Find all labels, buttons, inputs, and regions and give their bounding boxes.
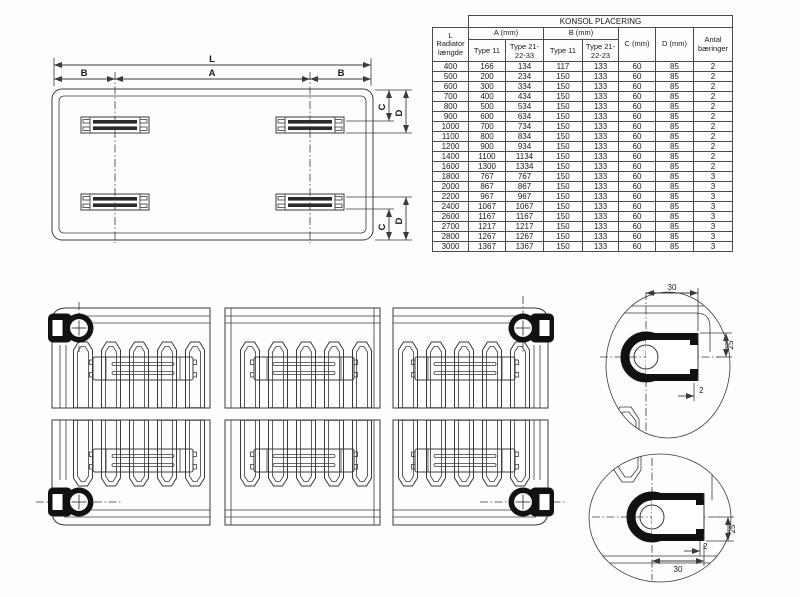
table-cell: 60 [619,242,656,252]
table-cell: 1067 [506,202,544,212]
table-cell: 150 [544,212,583,222]
table-cell: 1367 [506,242,544,252]
table-cell: 1100 [433,132,469,142]
column-header-c: C (mm) [619,28,656,62]
table-cell: 150 [544,102,583,112]
table-cell: 150 [544,82,583,92]
table-cell: 150 [544,182,583,192]
table-cell: 3 [694,242,733,252]
table-cell: 2 [694,62,733,72]
table-row: 24001067106715013360853 [433,202,733,212]
table-row: 40016613411713360852 [433,62,733,72]
table-cell: 1600 [433,162,469,172]
column-header-l: L Radiator længde [433,28,469,62]
table-cell: 1167 [469,212,506,222]
table-row: 16001300133415013360852 [433,162,733,172]
table-cell: 3 [694,172,733,182]
table-cell: 150 [544,242,583,252]
column-header-antal: Antal bæringer [694,28,733,62]
table-cell: 1000 [433,122,469,132]
table-cell: 85 [656,242,694,252]
dim-label-b-left: B [81,68,88,79]
table-cell: 867 [506,182,544,192]
table-cell: 133 [583,222,619,232]
table-cell: 700 [469,122,506,132]
table-cell: 150 [544,222,583,232]
table-cell: 85 [656,112,694,122]
table-cell: 534 [506,102,544,112]
table-cell: 85 [656,62,694,72]
radiator-right-end-view [393,296,566,525]
table-cell: 60 [619,72,656,82]
clamp-detail-top: 30 25 2 [600,283,735,438]
dim-label-c-bottom: C [377,223,388,230]
table-cell: 85 [656,222,694,232]
table-cell: 60 [619,122,656,132]
detail-top-dim-30: 30 [668,283,677,292]
column-group-a: A (mm) [469,28,544,40]
table-row: 180076776715013360853 [433,172,733,182]
table-cell: 85 [656,232,694,242]
table-cell: 133 [583,232,619,242]
column-group-b: B (mm) [544,28,619,40]
table-cell: 1067 [469,202,506,212]
radiator-left-end-view [36,302,210,525]
table-cell: 60 [619,142,656,152]
table-cell: 934 [506,142,544,152]
table-row: 200086786715013360853 [433,182,733,192]
table-cell: 834 [506,132,544,142]
table-cell: 150 [544,142,583,152]
detail-top-dim-25: 25 [726,340,735,349]
detail-top-dim-2: 2 [699,386,704,395]
detail-bottom-dim-30: 30 [674,565,683,574]
table-cell: 85 [656,142,694,152]
table-cell: 60 [619,172,656,182]
table-cell: 60 [619,232,656,242]
table-cell: 800 [433,102,469,112]
table-row: 220096796715013360853 [433,192,733,202]
table-cell: 967 [506,192,544,202]
table-cell: 133 [583,162,619,172]
table-cell: 117 [544,62,583,72]
wall-bracket-rail [251,449,358,472]
table-cell: 150 [544,122,583,132]
table-cell: 133 [583,192,619,202]
table-cell: 60 [619,222,656,232]
dim-label-l: L [209,54,215,65]
table-cell: 60 [619,162,656,172]
table-cell: 85 [656,132,694,142]
table-cell: 3 [694,192,733,202]
table-cell: 150 [544,232,583,242]
table-cell: 800 [469,132,506,142]
dim-label-c-top: C [377,103,388,110]
clamp-screw-icon [48,314,94,343]
table-cell: 2 [694,72,733,82]
table-cell: 1100 [469,152,506,162]
clamp-screw-icon [509,488,555,517]
table-cell: 134 [506,62,544,72]
table-cell: 3000 [433,242,469,252]
column-header-b-type21: Type 21-22-23 [583,40,619,62]
table-cell: 2800 [433,232,469,242]
wall-bracket-rail [251,357,358,380]
table-cell: 900 [433,112,469,122]
table-cell: 150 [544,72,583,82]
table-cell: 60 [619,112,656,122]
table-cell: 85 [656,162,694,172]
table-cell: 85 [656,122,694,132]
table-cell: 767 [506,172,544,182]
table-cell: 634 [506,112,544,122]
table-cell: 133 [583,152,619,162]
table-cell: 234 [506,72,544,82]
table-cell: 400 [469,92,506,102]
table-cell: 2 [694,152,733,162]
table-cell: 500 [469,102,506,112]
table-cell: 133 [583,182,619,192]
table-cell: 2 [694,122,733,132]
table-cell: 2 [694,82,733,92]
column-header-a-type21: Type 21-22-33 [506,40,544,62]
table-cell: 500 [433,72,469,82]
radiator-middle-view [225,308,380,525]
table-cell: 150 [544,172,583,182]
table-cell: 600 [433,82,469,92]
table-cell: 133 [583,72,619,82]
table-cell: 1267 [506,232,544,242]
table-cell: 60 [619,192,656,202]
table-cell: 400 [433,62,469,72]
dim-label-d-top: D [394,109,405,116]
table-cell: 150 [544,192,583,202]
table-cell: 60 [619,62,656,72]
table-row: 26001167116715013360853 [433,212,733,222]
table-cell: 1367 [469,242,506,252]
table-row: 100070073415013360852 [433,122,733,132]
table-cell: 700 [433,92,469,102]
table-cell: 1134 [506,152,544,162]
table-cell: 150 [544,112,583,122]
table-row: 110080083415013360852 [433,132,733,142]
table-cell: 334 [506,82,544,92]
table-cell: 1334 [506,162,544,172]
table-cell: 133 [583,172,619,182]
table-cell: 3 [694,222,733,232]
table-cell: 133 [583,142,619,152]
table-cell: 133 [583,92,619,102]
table-cell: 85 [656,102,694,112]
table-row: 28001267126715013360853 [433,232,733,242]
wall-bracket-rail [412,357,519,380]
table-row: 120090093415013360852 [433,142,733,152]
table-cell: 60 [619,92,656,102]
table-cell: 1800 [433,172,469,182]
table-cell: 1217 [469,222,506,232]
radiator-views [36,296,566,525]
table-cell: 2 [694,102,733,112]
table-cell: 2400 [433,202,469,212]
datasheet-page: L B A B C D C D [0,0,800,597]
table-cell: 60 [619,152,656,162]
table-spacer-cell [433,16,469,28]
table-cell: 133 [583,112,619,122]
table-cell: 166 [469,62,506,72]
table-cell: 150 [544,162,583,172]
table-cell: 85 [656,152,694,162]
dim-label-d-bottom: D [394,217,405,224]
table-cell: 300 [469,82,506,92]
table-row: 14001100113415013360852 [433,152,733,162]
table-cell: 150 [544,202,583,212]
table-cell: 3 [694,202,733,212]
table-cell: 734 [506,122,544,132]
konsol-placering-table: KONSOL PLACERING L Radiator længde A (mm… [432,15,733,252]
clamp-screw-icon [48,488,94,517]
table-row: 70040043415013360852 [433,92,733,102]
table-cell: 133 [583,202,619,212]
table-cell: 2700 [433,222,469,232]
column-header-a-type11: Type 11 [469,40,506,62]
table-cell: 2600 [433,212,469,222]
table-cell: 85 [656,202,694,212]
table-cell: 85 [656,212,694,222]
table-cell: 2 [694,112,733,122]
table-row: 90060063415013360852 [433,112,733,122]
table-cell: 133 [583,132,619,142]
table-cell: 2 [694,142,733,152]
table-cell: 60 [619,132,656,142]
table-row: 80050053415013360852 [433,102,733,112]
table-cell: 85 [656,172,694,182]
table-cell: 150 [544,132,583,142]
table-cell: 1400 [433,152,469,162]
table-cell: 3 [694,182,733,192]
table-cell: 900 [469,142,506,152]
table-cell: 60 [619,102,656,112]
clamp-screw-icon [509,314,555,343]
table-cell: 1217 [506,222,544,232]
table-cell: 1167 [506,212,544,222]
table-cell: 2 [694,162,733,172]
table-title: KONSOL PLACERING [469,16,733,28]
table-cell: 1200 [433,142,469,152]
table-row: 50020023415013360852 [433,72,733,82]
table-cell: 60 [619,212,656,222]
table-cell: 133 [583,82,619,92]
table-cell: 2 [694,132,733,142]
table-cell: 1300 [469,162,506,172]
table-cell: 133 [583,62,619,72]
table-cell: 133 [583,242,619,252]
table-cell: 2200 [433,192,469,202]
wall-bracket-rail [412,449,519,472]
column-header-b-type11: Type 11 [544,40,583,62]
clamp-detail-bottom: 2 25 30 [589,454,737,582]
table-cell: 85 [656,182,694,192]
table-cell: 3 [694,212,733,222]
table-cell: 150 [544,152,583,162]
table-cell: 85 [656,92,694,102]
table-cell: 133 [583,122,619,132]
table-cell: 85 [656,82,694,92]
table-cell: 60 [619,82,656,92]
table-cell: 2000 [433,182,469,192]
table-cell: 600 [469,112,506,122]
table-cell: 200 [469,72,506,82]
plan-view: L B A B C D C D [52,54,412,243]
table-row: 27001217121715013360853 [433,222,733,232]
table-cell: 2 [694,92,733,102]
table-cell: 967 [469,192,506,202]
table-row: 30001367136715013360853 [433,242,733,252]
table-cell: 133 [583,212,619,222]
table-cell: 3 [694,232,733,242]
dim-label-a: A [209,68,216,79]
dim-label-b-right: B [338,68,345,79]
table-cell: 85 [656,72,694,82]
detail-bottom-dim-25: 25 [728,524,737,533]
table-cell: 150 [544,92,583,102]
table-cell: 133 [583,102,619,112]
table-cell: 1267 [469,232,506,242]
table-cell: 434 [506,92,544,102]
table-row: 60030033415013360852 [433,82,733,92]
table-cell: 767 [469,172,506,182]
konsol-table-body: 4001661341171336085250020023415013360852… [433,62,733,252]
table-cell: 60 [619,202,656,212]
table-cell: 85 [656,192,694,202]
column-header-d: D (mm) [656,28,694,62]
table-cell: 867 [469,182,506,192]
table-cell: 60 [619,182,656,192]
